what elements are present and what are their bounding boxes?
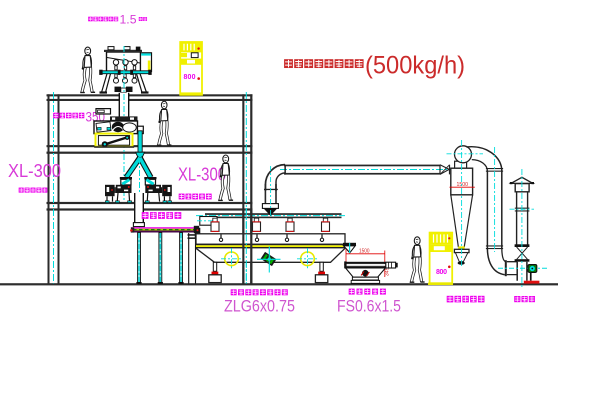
svg-text:1.5: 1.5	[120, 13, 137, 27]
svg-text:800: 800	[436, 269, 447, 276]
svg-text:1500: 1500	[359, 248, 370, 254]
svg-text:800: 800	[184, 74, 196, 81]
svg-text:XL-300: XL-300	[178, 164, 226, 184]
svg-text:ZLG6x0.75: ZLG6x0.75	[224, 298, 295, 316]
svg-text:XL-300: XL-300	[8, 161, 61, 181]
svg-text:(500kg/h): (500kg/h)	[365, 52, 465, 80]
svg-text:1500: 1500	[457, 182, 469, 188]
svg-text:FS0.6x1.5: FS0.6x1.5	[337, 298, 401, 316]
